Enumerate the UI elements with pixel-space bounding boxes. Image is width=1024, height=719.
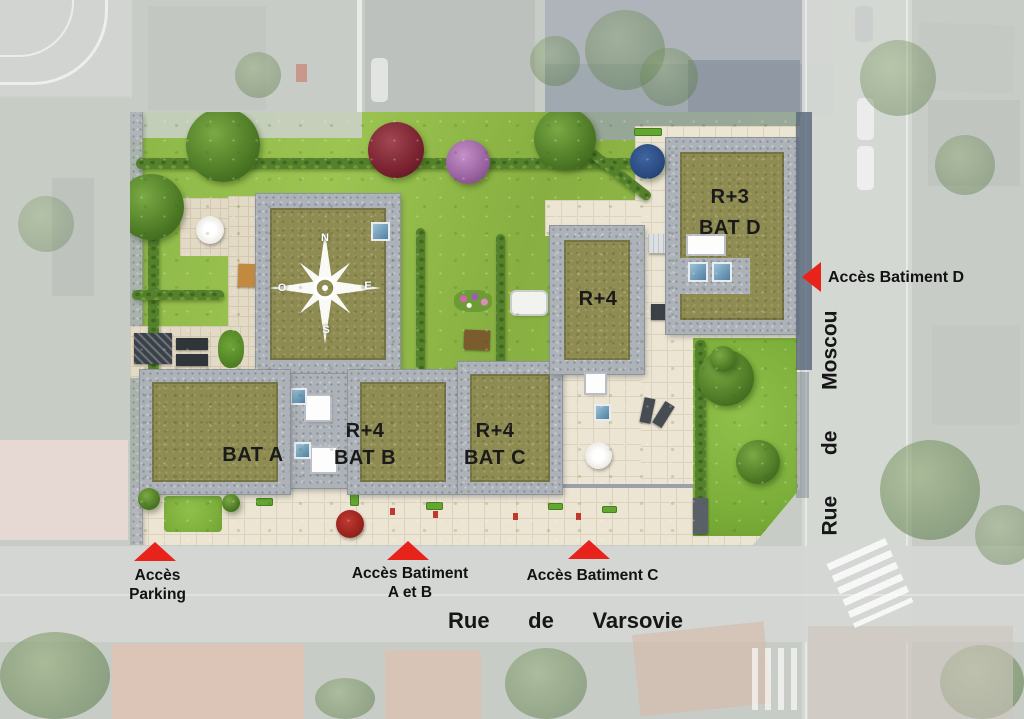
building-bat-a-roof [152,382,278,482]
terrace-wall-edge [132,484,798,488]
street-word: Rue [448,608,490,634]
hedge [136,158,634,169]
hedge [496,234,505,380]
hedge [148,208,159,416]
tree [534,108,596,170]
bat-b-floors: R+4 [305,418,425,445]
planter [548,503,563,510]
tree [222,494,240,512]
street-word: Moscou [819,311,843,390]
hedge [695,340,706,532]
flower-pot [433,511,438,518]
garden-table-set [512,292,546,314]
tree [698,350,754,406]
parked-car [857,146,874,190]
neighbor-wall-shadow [796,372,809,498]
tree [736,440,780,484]
faded-white-van [371,58,388,102]
neighbor-wall-shadow [796,112,812,370]
access-bat-ab-line2: A et B [330,583,490,602]
south-terrace-band [132,486,798,545]
shrub-bed [218,330,244,368]
parked-car [855,6,873,42]
bat-c-floors: R+4 [435,418,555,445]
street-label-rue-de-moscou: Rue de Moscou [816,311,846,536]
faded-strip-top-left [130,112,362,138]
compass-letter-east: E [360,280,376,292]
compass-letter-south: S [318,324,334,336]
bat-d-floors: R+3 [670,184,790,211]
roof-skylight [688,236,724,254]
sandbox [464,330,491,351]
blue-parasol [630,144,665,179]
building-label-bat-c: R+4 BAT C [435,418,555,472]
faded-house-roof [808,626,1013,719]
lawn-patch [164,496,222,532]
building-label-bat-a: BAT A [190,442,316,469]
building-center-roof [564,240,630,360]
center-floors: R+4 [579,288,618,310]
awning [238,264,262,288]
building-bat-a [140,370,290,494]
planter [602,506,617,513]
faded-tree [880,440,980,540]
garden-terrace [180,198,244,256]
access-parking-line1: Accès [100,566,215,585]
faded-tree [0,632,110,719]
building-bat-d-roof [680,152,784,320]
roof-skylight [690,264,706,280]
access-parking-label: Accès Parking [100,566,215,604]
roof-skylight [312,448,336,472]
building-compass-block-roof [270,208,386,360]
hedge [587,148,653,203]
picnic-table [651,304,679,320]
hedge [416,228,425,370]
roof-skylight [373,224,388,239]
roof-skylight [596,406,609,419]
access-bat-c-triangle-icon [568,540,610,559]
building-bat-b [348,370,458,494]
faded-house-roof [385,650,481,719]
picnic-table [176,338,208,350]
faded-tree [505,648,587,719]
street-word: de [528,608,554,634]
neighbor-roof-overlay [560,112,800,140]
bat-a-name: BAT A [222,444,283,466]
compass-letter-west: O [274,282,290,294]
compass-rose-icon [263,226,387,350]
tree [138,488,160,510]
planter [350,490,359,506]
faded-house-roof [112,644,304,719]
building-label-center: R+4 [558,286,638,313]
sun-lounger [640,397,656,424]
faded-house-roof [365,0,535,112]
site-boundary-wall [130,112,142,545]
private-garden [693,338,797,536]
access-bat-d-line1: Accès Batiment D [828,268,998,287]
access-bat-ab-line1: Accès Batiment [330,564,490,583]
planter [634,128,662,136]
access-bat-c-label: Accès Batiment C [510,566,675,585]
crosswalk [752,648,800,710]
flowering-tree [446,140,490,184]
compass-letter-north: N [317,232,333,244]
building-compass-block [256,194,400,374]
building-label-bat-d: R+3 BAT D [670,184,790,242]
red-parasol [336,510,364,538]
tree [186,108,260,182]
hedge [132,290,224,300]
flower-pot [390,508,395,515]
faded-tree [530,36,580,86]
access-parking-line2: Parking [100,585,215,604]
faded-pink-building [0,440,128,540]
planter [426,502,443,510]
building-bat-c-roof [470,374,550,482]
walkway [545,364,641,545]
faded-tree [640,48,698,106]
tree [710,346,736,372]
roof-skylight [586,374,605,393]
faded-tree [860,40,936,116]
faded-house-roof [688,60,800,118]
building-label-bat-b: R+4 BAT B [305,418,425,472]
roof-skylight [306,396,330,420]
central-plaza [635,126,800,545]
pergola [648,234,682,253]
picnic-table [176,354,208,366]
building-bat-d-notch [680,258,750,294]
flower-pot [576,513,581,520]
street-word: Varsovie [592,608,683,634]
red-tree [368,122,424,178]
planter [256,498,273,506]
flower-pot [513,513,518,520]
bat-d-name: BAT D [670,215,790,242]
building-link-block [286,374,352,488]
access-bat-ab-triangle-icon [387,541,429,560]
street-word: de [819,431,843,456]
street-label-rue-de-varsovie: Rue de Varsovie [448,606,683,636]
access-bat-ab-label: Accès Batiment A et B [330,564,490,602]
faded-red-object [296,64,307,82]
roof-skylight [714,264,730,280]
building-bat-c [458,362,562,494]
access-bat-d-triangle-icon [802,262,821,292]
access-bat-c-line1: Accès Batiment C [510,566,675,585]
solar-panels [134,333,172,364]
garden-shed [693,498,708,534]
faded-house-roof [932,325,1020,425]
bat-c-name: BAT C [435,445,555,472]
parasol [196,216,224,244]
terrace-bat-a [130,326,244,378]
residential-site-plan: N E S O BAT A R+4 BAT B R+4 BAT C R+4 R+… [130,112,800,545]
faded-tree [935,135,995,195]
faded-tree [315,678,375,719]
faded-tree [18,196,74,252]
sun-lounger [652,401,675,428]
building-bat-b-roof [360,382,446,482]
garden-path [228,196,256,488]
bat-b-name: BAT B [305,445,425,472]
faded-tree [235,52,281,98]
faded-pole-line [357,0,362,113]
roof-skylight [292,390,305,403]
building-center [550,226,644,374]
access-bat-d-label: Accès Batiment D [828,268,998,287]
building-bat-d [666,138,798,334]
parasol [585,442,612,469]
walkway [545,200,641,236]
site-plan-screenshot: N E S O BAT A R+4 BAT B R+4 BAT C R+4 R+… [0,0,1024,719]
flower-bed [454,290,492,312]
roof-skylight [296,444,309,457]
street-word: Rue [819,496,843,536]
access-parking-triangle-icon [134,542,176,561]
